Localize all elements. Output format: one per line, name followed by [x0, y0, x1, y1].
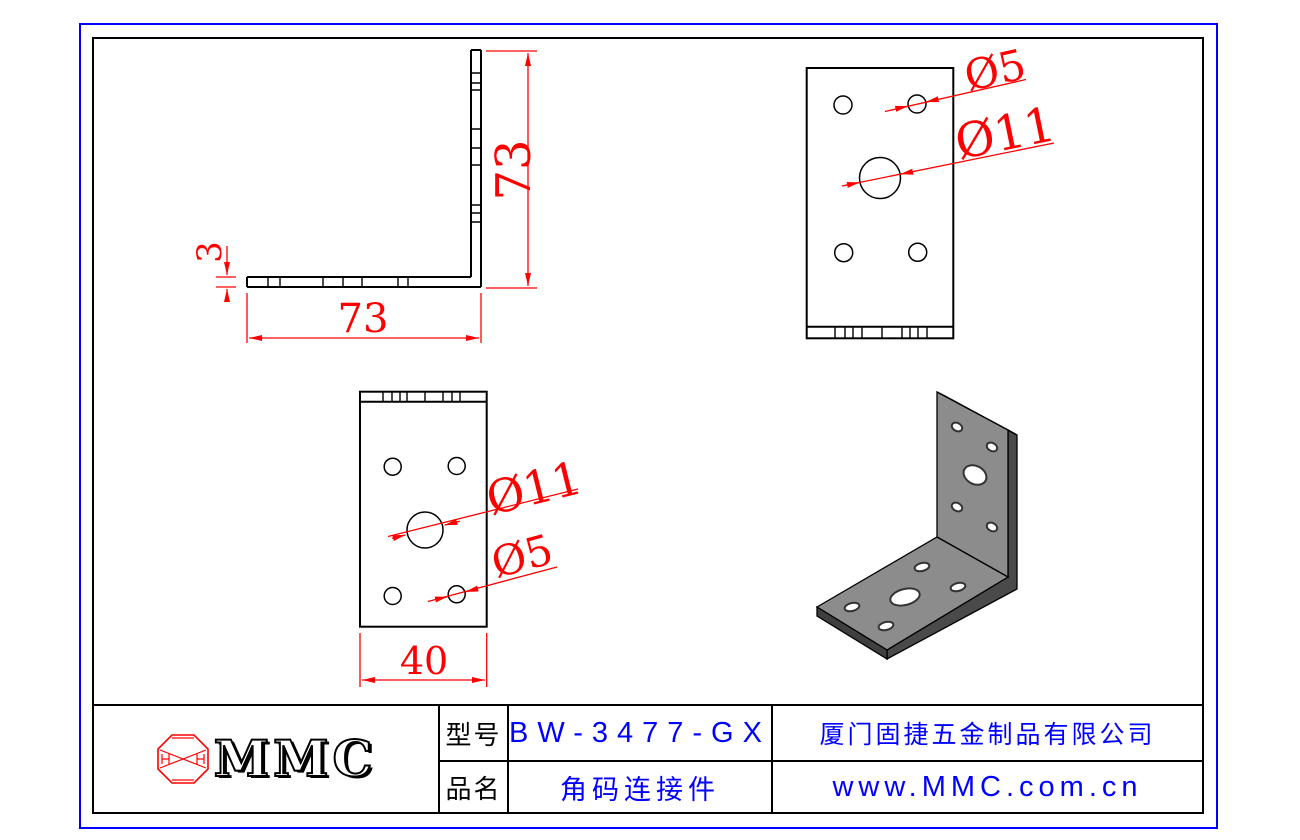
drawing-sheet: 73 73 3 Ø5 Ø11 — [0, 0, 1300, 840]
side-thickness-dim: 3 — [190, 241, 230, 263]
iso-view — [817, 392, 1017, 659]
front-view-hidden-ticks — [383, 392, 460, 402]
side-view-hidden-ticks — [268, 73, 481, 287]
product-label: 品名 — [440, 762, 507, 812]
front-width-dim: 40 — [400, 639, 448, 683]
side-width-dim: 73 — [338, 296, 389, 342]
company-website: www.MMC.com.cn — [773, 762, 1202, 812]
model-value: BW-3477-GX — [509, 706, 771, 760]
top-view — [807, 68, 954, 338]
top-view-hidden-ticks — [835, 327, 927, 339]
logo-octagon-icon — [156, 733, 210, 785]
product-value: 角码连接件 — [509, 762, 771, 812]
logo-text: MMC — [214, 734, 377, 784]
side-height-dim: 73 — [486, 139, 542, 200]
company-logo: MMC — [93, 705, 439, 813]
top-view-large-hole-label: Ø11 — [950, 96, 1060, 171]
front-view-holes — [384, 458, 465, 605]
company-name: 厦门固捷五金制品有限公司 — [773, 706, 1202, 760]
front-view-large-hole-label: Ø11 — [481, 450, 587, 526]
top-view-small-hole-label: Ø5 — [960, 40, 1030, 101]
side-view — [247, 50, 481, 287]
front-view-small-hole-label: Ø5 — [486, 525, 558, 588]
model-label: 型号 — [440, 706, 507, 760]
